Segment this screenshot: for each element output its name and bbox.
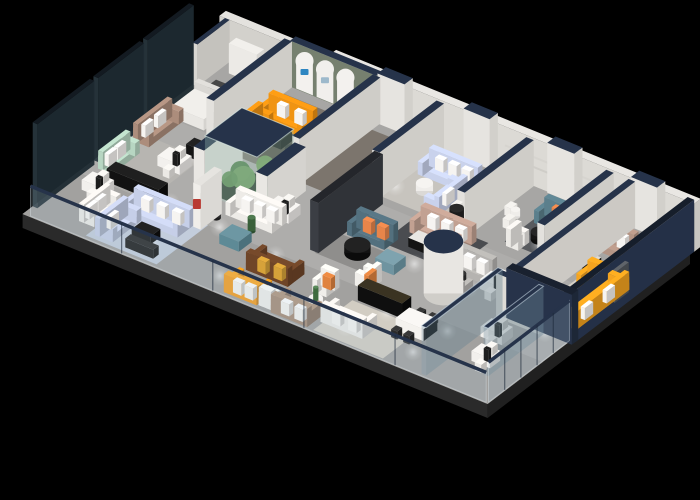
display-desk-set — [484, 348, 489, 362]
display-desk-set — [177, 153, 180, 167]
coffee-table-white — [416, 178, 433, 188]
brown-leather-sofa — [288, 265, 293, 287]
potted-plant — [248, 215, 256, 220]
brown-sectional — [154, 115, 158, 129]
cylinder-column — [424, 229, 464, 253]
orange-sofa-east-long — [581, 306, 585, 320]
orange-sofa-east-long — [603, 290, 607, 304]
side-table-white — [511, 207, 520, 213]
armchair-white — [506, 228, 511, 248]
mint-sofa — [105, 153, 109, 167]
spotlight-pool — [405, 254, 425, 274]
taupe-sectional-center — [410, 219, 415, 234]
showroom-isometric-scene — [0, 0, 700, 500]
floorplan-3d-render — [0, 0, 700, 500]
arch-display-panel — [336, 69, 354, 87]
display-desk-set — [173, 153, 178, 167]
center-feature-wall — [310, 200, 318, 253]
teal-sofa-center — [393, 221, 398, 243]
armchair-orange-trim — [335, 269, 340, 291]
mint-sofa — [98, 150, 103, 170]
round-table-black — [449, 204, 464, 213]
arch-display-panel — [316, 60, 334, 78]
brown-sectional — [141, 124, 145, 138]
periwinkle-chaise — [442, 193, 446, 207]
table-plant — [313, 285, 318, 288]
logo-mark — [301, 69, 309, 75]
white-sofa-center — [282, 204, 287, 226]
oval-coffee-table-black — [344, 237, 370, 253]
arch-display-panel-logo — [295, 52, 313, 70]
teal-sofa-center — [347, 222, 352, 237]
white-sofa-center — [226, 202, 231, 217]
periwinkle-sofa — [418, 161, 423, 176]
logo-mark — [321, 77, 329, 83]
taupe-sectional-center — [472, 223, 477, 245]
east-room-front-wall-navy — [572, 290, 578, 345]
back-wall — [694, 199, 700, 252]
logo-mark — [193, 199, 201, 209]
periwinkle-lounge-sofa — [173, 223, 178, 238]
